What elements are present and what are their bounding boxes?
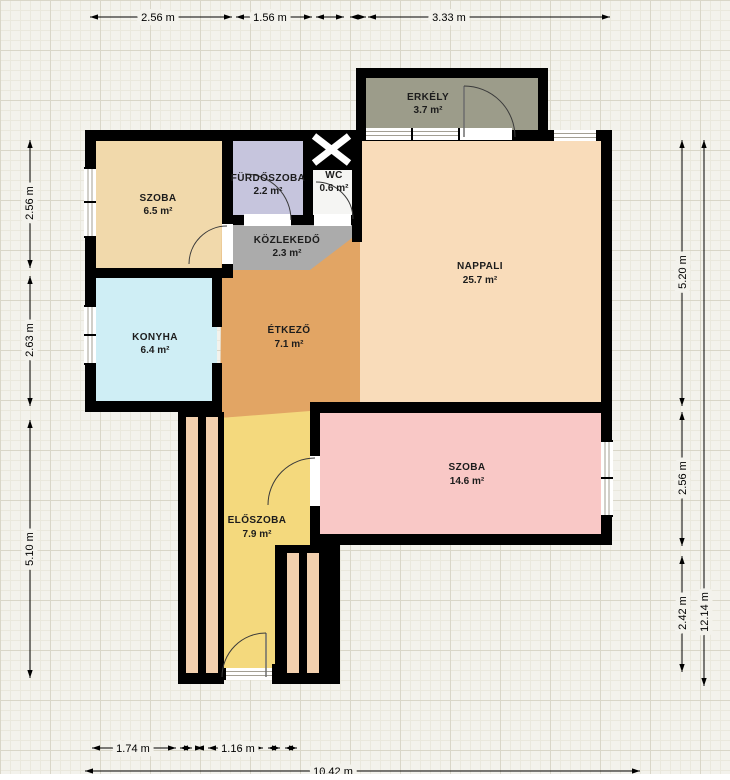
closet-left-stripe xyxy=(186,417,198,673)
wall-nappali-szoba xyxy=(310,402,612,413)
label-erkely: ERKÉLY xyxy=(407,90,449,103)
closet-right-stripe xyxy=(287,553,299,673)
wall-konyha-right-lower xyxy=(212,363,222,412)
wall-konyha-right-upper xyxy=(212,268,222,327)
shaft xyxy=(308,130,355,170)
label-wc: WC xyxy=(325,170,342,181)
closet-right-stripe xyxy=(307,553,319,673)
floor-plan-svg: 2.56 m 1.56 m 3.33 m 2.56 m 2.63 m 5.10 … xyxy=(0,0,730,780)
label-etkezo: ÉTKEZŐ xyxy=(268,323,311,336)
window-szoba-right xyxy=(601,440,613,517)
label-kozlekedo: KÖZLEKEDŐ xyxy=(254,233,320,246)
door-opening-wc xyxy=(314,214,351,226)
area-eloszoba: 7.9 m² xyxy=(243,529,273,540)
label-nappali: NAPPALI xyxy=(457,261,503,272)
label-szoba-large: SZOBA xyxy=(449,462,486,473)
dim-label: 2.63 m xyxy=(24,323,36,357)
label-eloszoba: ELŐSZOBA xyxy=(228,513,287,526)
area-szoba-small: 6.5 m² xyxy=(144,206,174,217)
door-opening-szoba-small xyxy=(222,224,233,264)
area-etkezo: 7.1 m² xyxy=(275,339,305,350)
wall-balcony-top xyxy=(356,68,548,78)
area-wc: 0.6 m² xyxy=(320,183,350,194)
window-balcony xyxy=(364,128,460,140)
door-opening-balcony xyxy=(460,128,512,140)
area-furdoszoba: 2.2 m² xyxy=(254,186,284,197)
door-opening-szoba-large xyxy=(310,456,320,506)
area-kozlekedo: 2.3 m² xyxy=(273,248,303,259)
dim-label: 5.20 m xyxy=(677,255,689,289)
area-szoba-large: 14.6 m² xyxy=(450,476,485,487)
dim-label: 1.74 m xyxy=(116,743,150,755)
area-konyha: 6.4 m² xyxy=(141,345,171,356)
door-opening-furdoszoba xyxy=(244,214,291,226)
bottom-margin xyxy=(0,774,730,780)
dim-label: 12.14 m xyxy=(699,592,711,632)
window-nappali-top xyxy=(552,130,598,141)
dim-label: 2.56 m xyxy=(677,461,689,495)
dim-label: 5.10 m xyxy=(24,532,36,566)
dim-label: 1.16 m xyxy=(221,743,255,755)
closet-left-stripe xyxy=(206,417,218,673)
area-nappali: 25.7 m² xyxy=(463,275,498,286)
dim-label: 2.56 m xyxy=(141,12,175,24)
area-erkely: 3.7 m² xyxy=(414,105,444,116)
room-szoba-large xyxy=(315,407,607,540)
window-konyha-left xyxy=(84,305,96,365)
window-szoba-left xyxy=(84,167,96,238)
label-szoba-small: SZOBA xyxy=(140,193,177,204)
label-konyha: KONYHA xyxy=(132,332,178,343)
wall-konyha-bottom xyxy=(85,401,222,412)
room-szoba-small xyxy=(90,135,227,273)
dim-label: 2.42 m xyxy=(677,596,689,630)
wall-balcony-right xyxy=(538,68,548,130)
label-furdoszoba: FÜRDŐSZOBA xyxy=(231,171,306,184)
floor-plan-canvas: 2.56 m 1.56 m 3.33 m 2.56 m 2.63 m 5.10 … xyxy=(0,0,730,780)
dim-label: 3.33 m xyxy=(432,12,466,24)
wall-szoba-large-bottom xyxy=(310,534,612,545)
room-erkely xyxy=(362,74,542,132)
dim-label: 2.56 m xyxy=(24,186,36,220)
wall-szoba-konyha xyxy=(85,268,222,278)
dim-label: 1.56 m xyxy=(253,12,287,24)
